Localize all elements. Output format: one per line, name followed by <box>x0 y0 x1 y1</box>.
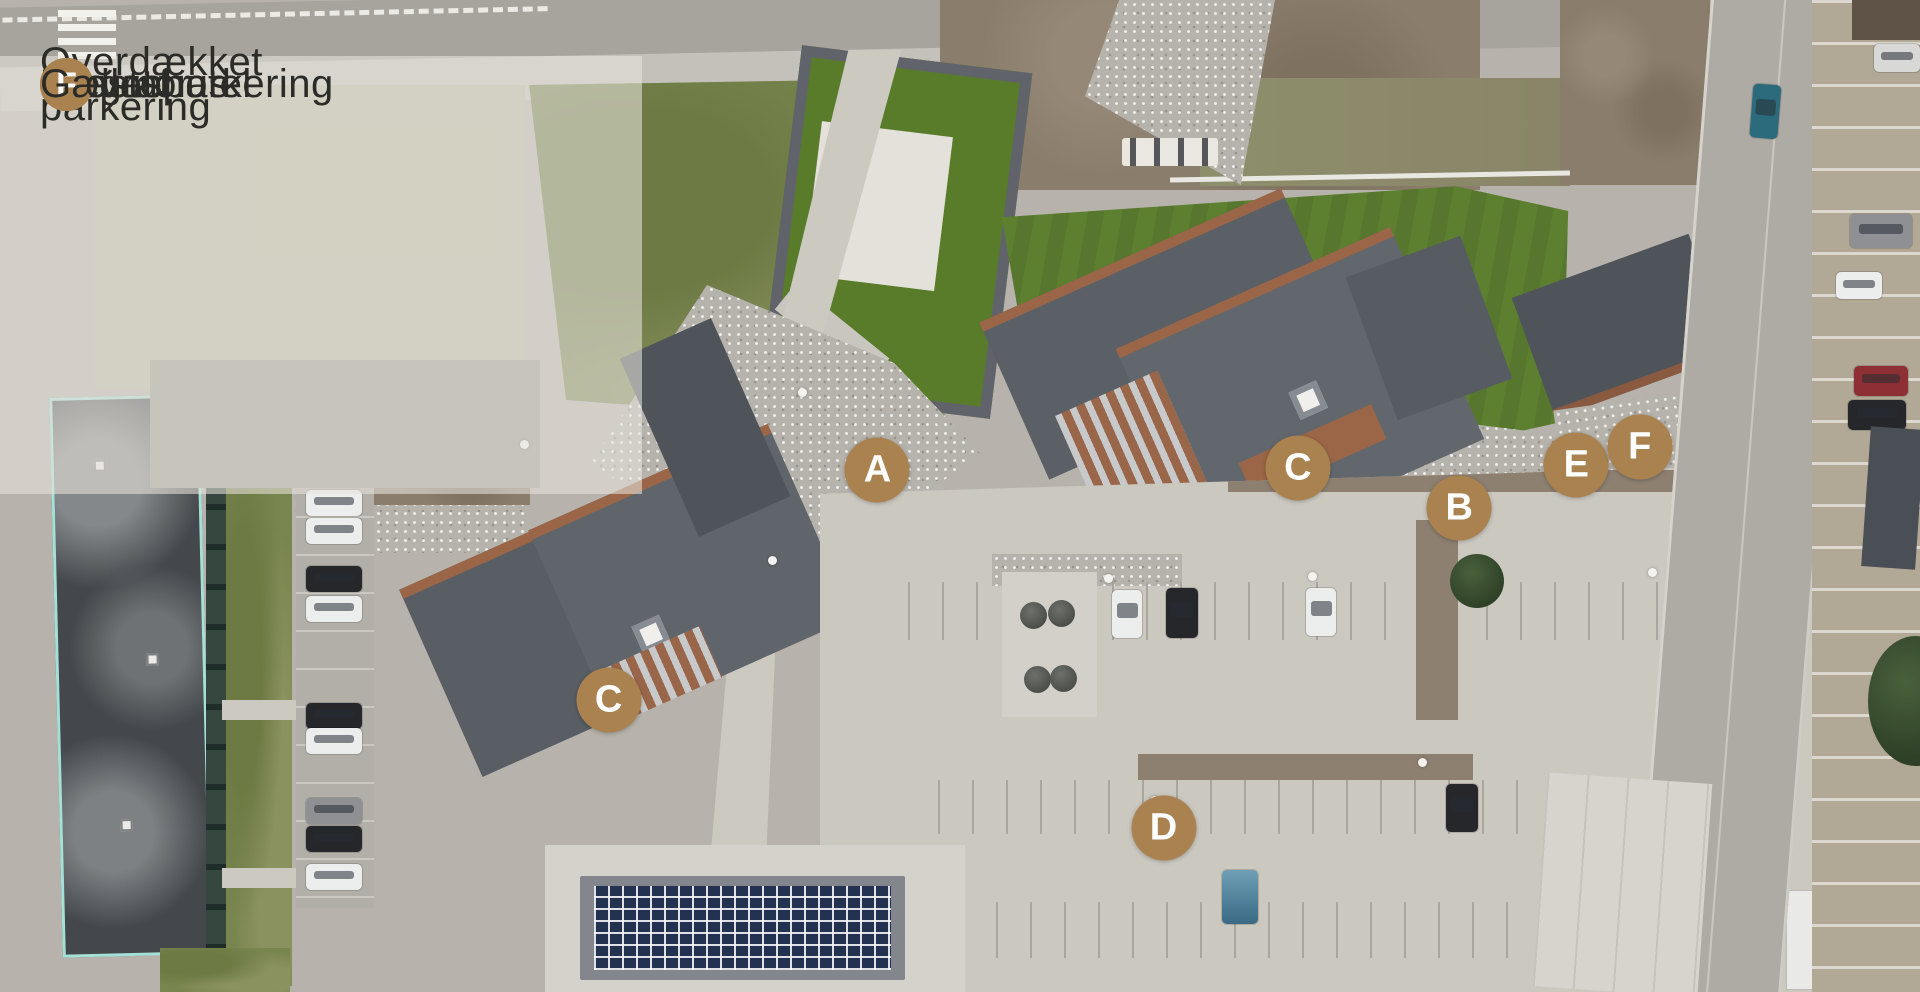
pale-roofs-bottom-right <box>1533 773 1713 992</box>
map-marker-e: E <box>1544 433 1609 498</box>
dirt-strip <box>1416 520 1458 720</box>
tree <box>1024 666 1051 693</box>
stall-row <box>938 780 1648 834</box>
map-marker-d: D <box>1131 796 1196 861</box>
roof-bottom-right <box>1861 426 1920 569</box>
map-marker-a: A <box>845 438 910 503</box>
tree <box>1020 602 1047 629</box>
planter-pad <box>1002 572 1097 717</box>
tree <box>1048 600 1075 627</box>
walkway-cross <box>222 868 298 888</box>
roof-vent <box>120 819 132 831</box>
aerial-site-map: A Biograf B Overdækket parkering C Eleva… <box>0 0 1920 992</box>
grass-bottom-left <box>160 948 290 992</box>
legend-overlay-panel: A Biograf B Overdækket parkering C Eleva… <box>0 56 642 494</box>
map-marker-c-right: C <box>1265 436 1330 501</box>
bench-row <box>1122 138 1218 166</box>
skylight <box>1288 380 1328 420</box>
solar-panels <box>594 886 891 970</box>
map-marker-c-left: C <box>576 668 641 733</box>
solar-panel-roof <box>580 876 905 980</box>
walkway-cross <box>222 700 298 720</box>
left-parking-stalls <box>296 478 374 908</box>
roof-top-right <box>1852 0 1920 40</box>
tree <box>1050 665 1077 692</box>
construction-dirt-right <box>1560 0 1710 185</box>
map-marker-f: F <box>1607 415 1672 480</box>
roof-vent <box>146 653 158 665</box>
lane-line <box>1705 0 1787 992</box>
bush <box>1450 554 1504 608</box>
map-marker-b: B <box>1427 475 1492 540</box>
legend-list: A Biograf B Overdækket parkering C Eleva… <box>40 56 600 494</box>
legend-label-f: Gæstehotel <box>40 62 252 107</box>
grass-strip-west <box>226 486 292 986</box>
